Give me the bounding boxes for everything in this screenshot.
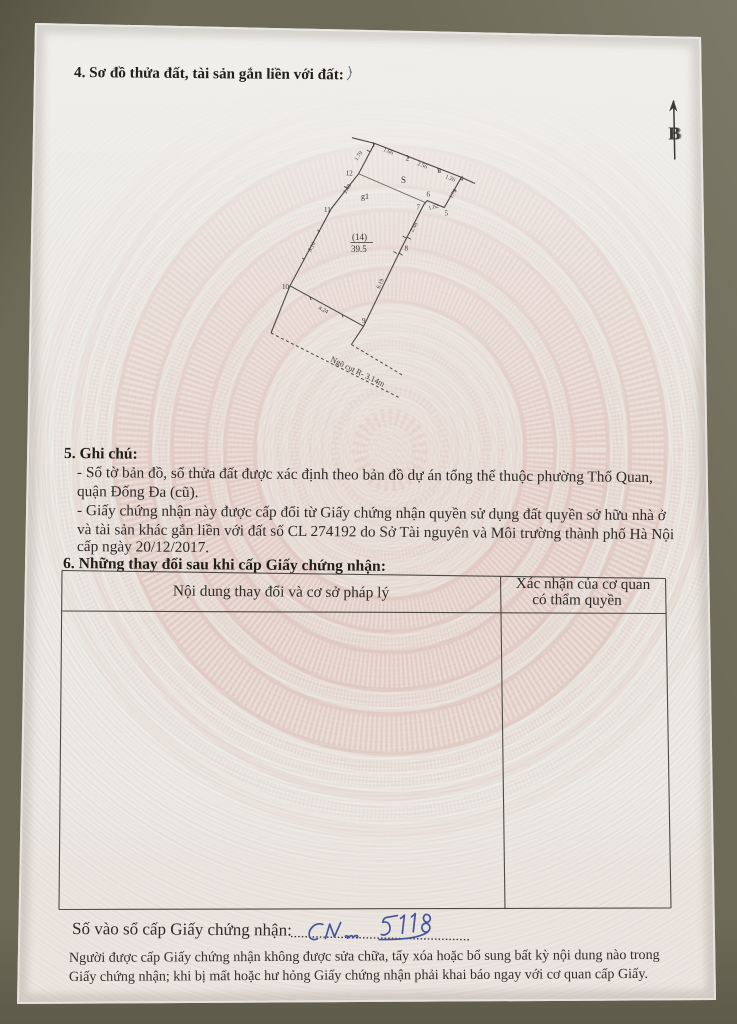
svg-text:Ngõ cụt R- 3.14m: Ngõ cụt R- 3.14m bbox=[329, 355, 387, 389]
svg-text:3: 3 bbox=[438, 167, 442, 175]
svg-text:7: 7 bbox=[417, 204, 421, 212]
svg-text:10: 10 bbox=[282, 283, 290, 291]
svg-text:g1: g1 bbox=[361, 192, 369, 201]
svg-text:Giấy chứng nhận; khi bị mất ho: Giấy chứng nhận; khi bị mất hoặc hư hỏng… bbox=[69, 966, 648, 985]
svg-text:9: 9 bbox=[362, 317, 366, 325]
svg-text:11: 11 bbox=[324, 206, 331, 214]
svg-text:6: 6 bbox=[427, 191, 431, 199]
svg-text:cấp ngày 20/12/2017.: cấp ngày 20/12/2017. bbox=[77, 538, 209, 556]
svg-text:2.48: 2.48 bbox=[343, 183, 354, 195]
svg-text:1.79: 1.79 bbox=[354, 150, 365, 162]
svg-text:5: 5 bbox=[445, 210, 449, 218]
svg-text:4: 4 bbox=[460, 175, 464, 183]
svg-text:Người được cấp Giấy chứng nhận: Người được cấp Giấy chứng nhận không đượ… bbox=[69, 947, 660, 966]
svg-text:1: 1 bbox=[372, 141, 376, 149]
svg-text:12: 12 bbox=[346, 170, 354, 178]
svg-text:8.10: 8.10 bbox=[307, 241, 317, 253]
svg-text:1.26: 1.26 bbox=[444, 174, 456, 183]
svg-text:- Số tờ bản đồ, số thửa đất đư: - Số tờ bản đồ, số thửa đất được xác địn… bbox=[77, 464, 653, 486]
svg-text:1.02: 1.02 bbox=[428, 203, 439, 211]
svg-text:Số vào sổ cấp Giấy chứng nhận:: Số vào sổ cấp Giấy chứng nhận: bbox=[72, 919, 292, 940]
svg-text:5. Ghi chú:: 5. Ghi chú: bbox=[64, 445, 138, 463]
svg-text:S: S bbox=[401, 175, 406, 185]
svg-text:quận Đống Đa (cũ).: quận Đống Đa (cũ). bbox=[77, 483, 199, 501]
svg-text:Nội dung thay đổi và cơ sở phá: Nội dung thay đổi và cơ sở pháp lý bbox=[173, 583, 390, 602]
svg-text:4.24: 4.24 bbox=[317, 305, 329, 315]
svg-text:6. Những thay đổi sau khi cấp: 6. Những thay đổi sau khi cấp Giấy chứng… bbox=[63, 555, 386, 575]
svg-text:B: B bbox=[670, 124, 682, 144]
svg-text:1.79: 1.79 bbox=[449, 188, 459, 200]
svg-text:(14): (14) bbox=[352, 232, 367, 242]
svg-text:2: 2 bbox=[406, 155, 410, 163]
svg-text:4. Sơ đồ thửa đất, tài sản gắn: 4. Sơ đồ thửa đất, tài sản gắn liền với … bbox=[74, 64, 344, 83]
svg-text:8: 8 bbox=[405, 245, 409, 253]
svg-text:39.5: 39.5 bbox=[351, 244, 367, 254]
svg-text:có thẩm quyền: có thẩm quyền bbox=[532, 591, 622, 609]
svg-text:2.48: 2.48 bbox=[409, 222, 419, 234]
svg-text:1.66: 1.66 bbox=[382, 147, 394, 156]
svg-text:2.56: 2.56 bbox=[416, 161, 428, 170]
